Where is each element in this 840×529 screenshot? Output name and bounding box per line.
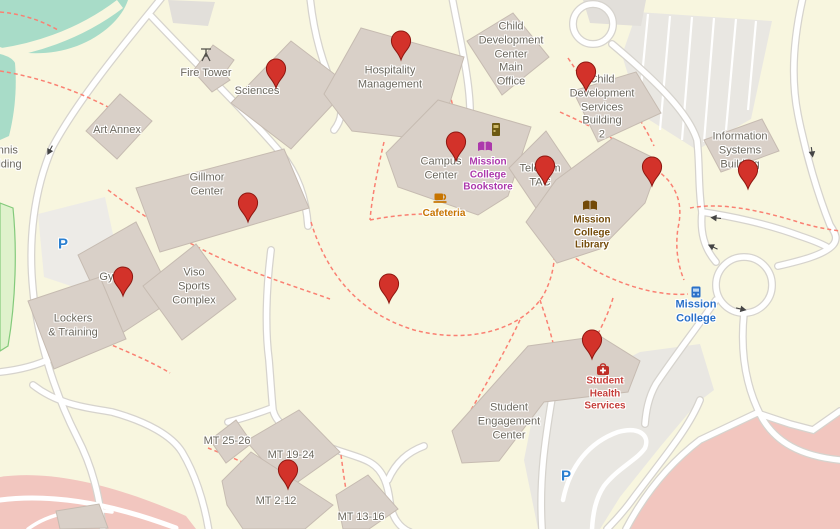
basemap-layer: [0, 0, 840, 529]
map-canvas[interactable]: Fire Tower Sciences Art Annex Tennis Bui…: [0, 0, 840, 529]
vending-machine-icon: [492, 123, 500, 136]
paved-area-topleft: [168, 0, 215, 26]
bus-stop-icon: [692, 287, 701, 298]
